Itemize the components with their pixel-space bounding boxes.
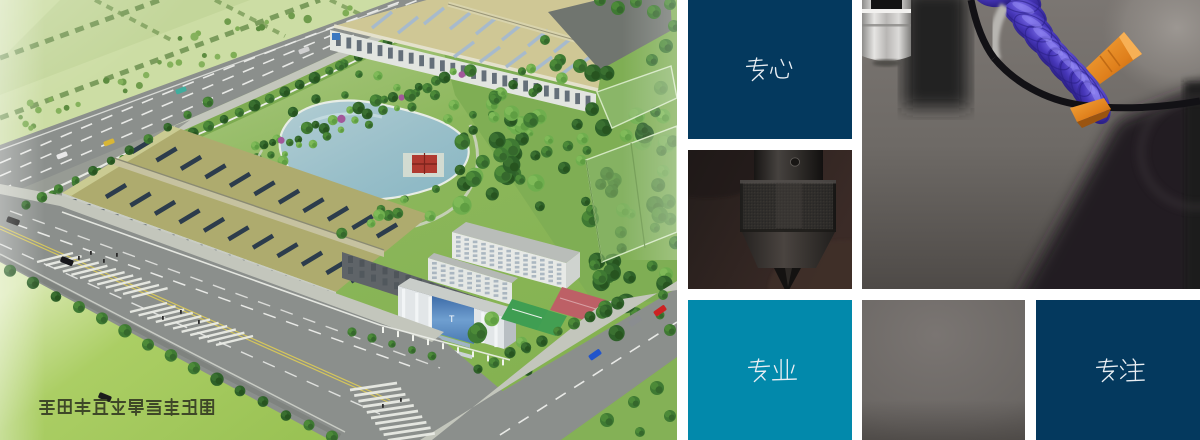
- svg-text:T: T: [449, 314, 455, 324]
